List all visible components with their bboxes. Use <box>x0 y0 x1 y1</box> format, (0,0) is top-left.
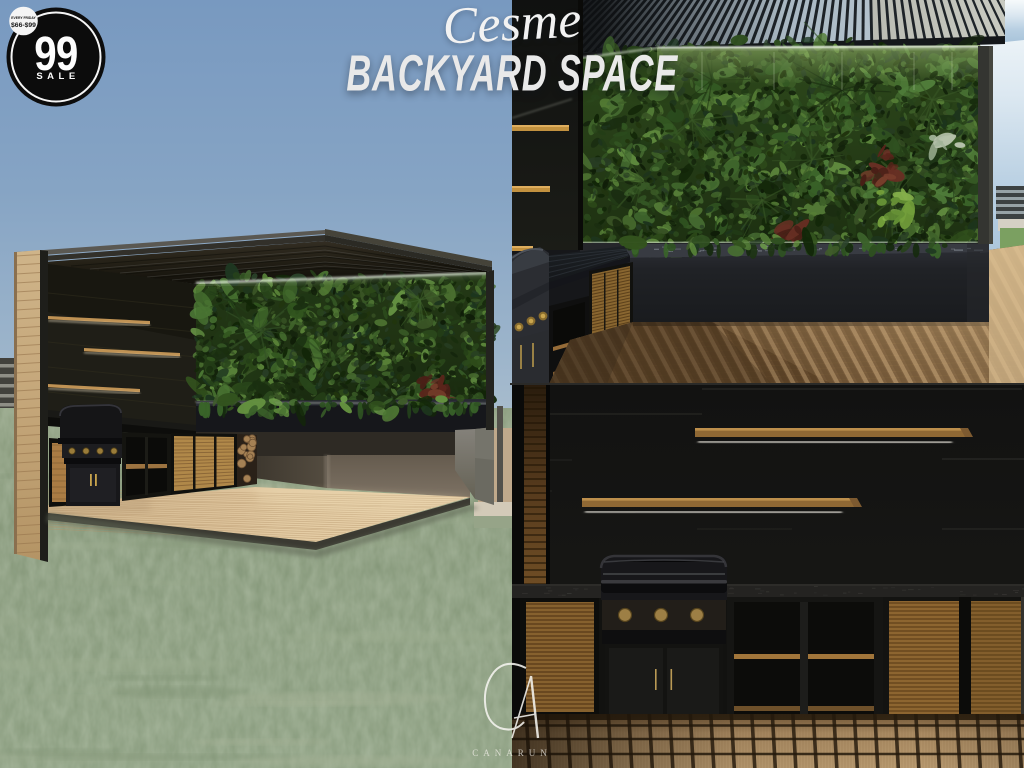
svg-text:CANARUN: CANARUN <box>472 748 552 758</box>
svg-text:EVERY FRIDAY: EVERY FRIDAY <box>11 16 36 20</box>
svg-text:$66-$99: $66-$99 <box>11 22 36 29</box>
svg-text:SALE: SALE <box>36 71 79 82</box>
